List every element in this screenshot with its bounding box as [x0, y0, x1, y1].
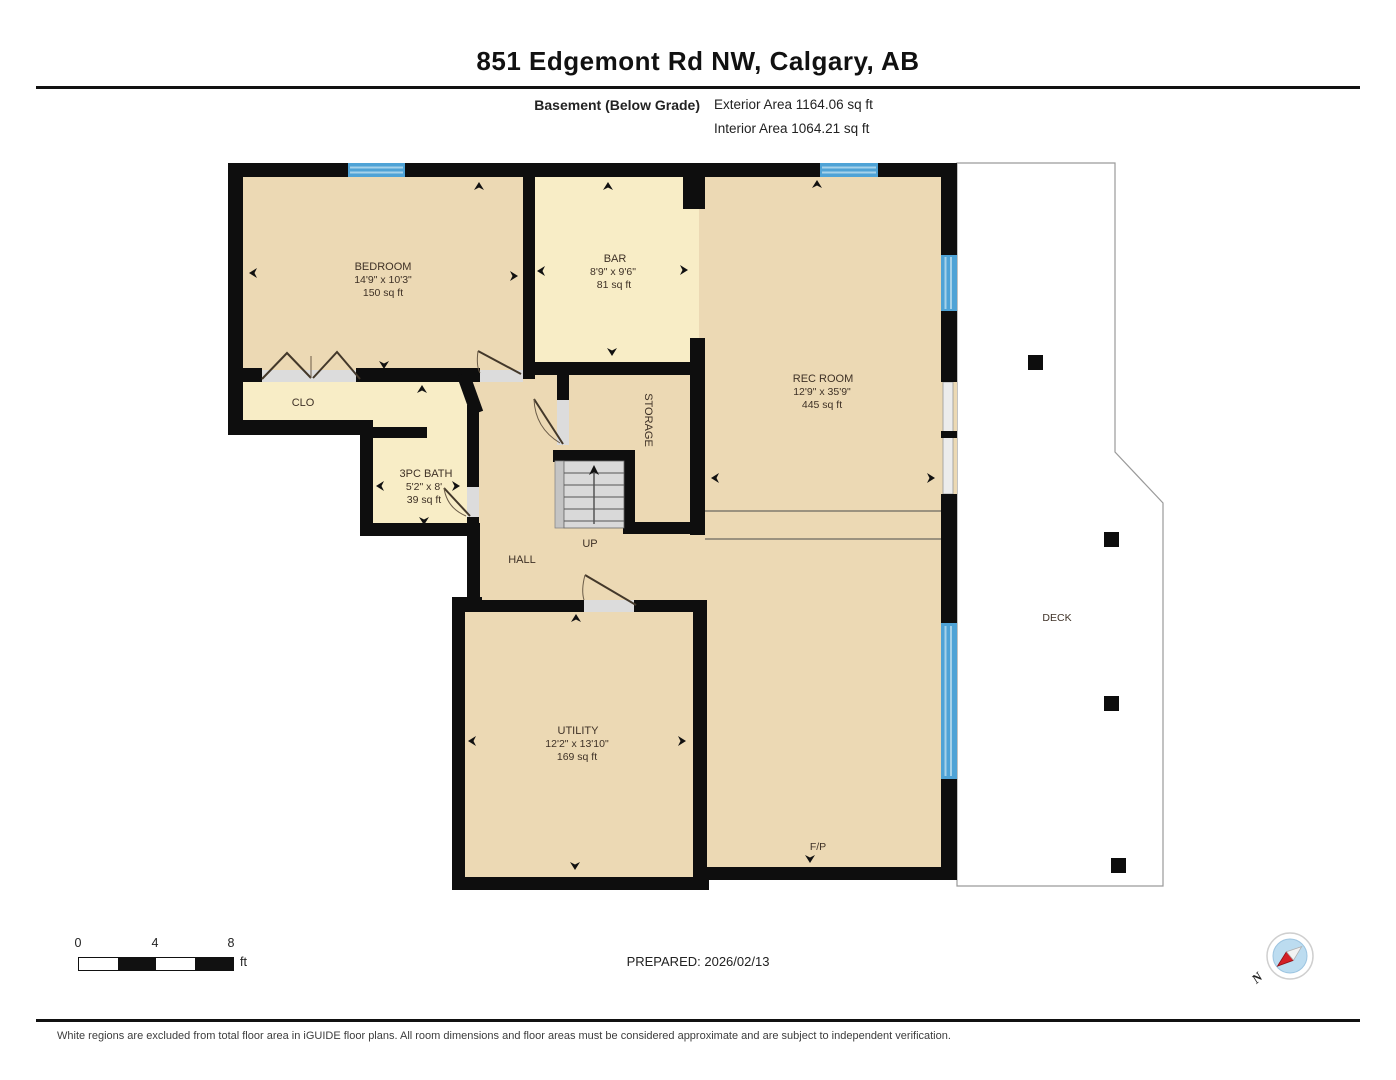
- bath-dims: 5'2" x 8': [406, 481, 442, 493]
- hall-label: HALL: [508, 554, 536, 566]
- exterior-area: Exterior Area 1164.06 sq ft: [714, 97, 873, 112]
- scale-tick-0: 0: [65, 936, 91, 950]
- stair-rail: [555, 461, 564, 528]
- wall-segment: [690, 338, 705, 535]
- footer-divider: [36, 1019, 1360, 1022]
- bar-label: BAR: [604, 253, 627, 265]
- interior-area: Interior Area 1064.21 sq ft: [714, 121, 869, 136]
- wall-segment: [553, 450, 635, 462]
- utility-dims: 12'2" x 13'10": [545, 738, 609, 750]
- wall-segment: [683, 163, 705, 209]
- bath-label: 3PC BATH: [400, 468, 453, 480]
- wall-segment: [634, 600, 707, 612]
- patio-door-jamb: [941, 431, 957, 438]
- rec-room-area: 445 sq ft: [802, 399, 842, 411]
- utility-label: UTILITY: [558, 725, 600, 737]
- bedroom-dims: 14'9" x 10'3": [354, 274, 412, 286]
- wall-segment: [693, 600, 707, 880]
- bedroom-label: BEDROOM: [355, 261, 412, 273]
- wall-segment: [941, 163, 957, 255]
- wall-segment: [467, 523, 480, 608]
- utility-door-opening: [584, 600, 634, 612]
- bath-door-opening: [467, 487, 479, 517]
- wall-segment: [557, 373, 569, 400]
- wall-segment: [228, 420, 365, 435]
- wall-segment: [623, 450, 635, 534]
- fireplace-label: F/P: [810, 841, 826, 853]
- compass-north-label: N: [1248, 969, 1266, 988]
- wall-segment: [360, 420, 373, 536]
- wall-segment: [467, 517, 479, 529]
- rec-room-dims: 12'9" x 35'9": [793, 386, 851, 398]
- floorplan-canvas: BEDROOM 14'9" x 10'3" 150 sq ft BAR 8'9"…: [0, 0, 1396, 1080]
- deck-post: [1111, 858, 1126, 873]
- window: [348, 163, 405, 177]
- deck-post: [1104, 696, 1119, 711]
- wall-segment: [360, 523, 480, 536]
- wall-segment: [373, 427, 427, 438]
- floor-label: Basement (Below Grade): [380, 97, 700, 113]
- wall-segment: [452, 600, 584, 612]
- wall-segment: [700, 867, 957, 880]
- deck-outline: [957, 163, 1163, 886]
- bar-dims: 8'9" x 9'6": [590, 266, 636, 278]
- wall-segment: [941, 494, 957, 623]
- wall-segment: [941, 779, 957, 880]
- deck-post: [1028, 355, 1043, 370]
- bar-area: 81 sq ft: [597, 279, 632, 291]
- staircase: [555, 461, 624, 528]
- wall-segment: [523, 163, 535, 379]
- page-title: 851 Edgemont Rd NW, Calgary, AB: [0, 46, 1396, 77]
- wall-segment: [467, 405, 479, 487]
- window: [941, 255, 957, 311]
- header-divider: [36, 86, 1360, 89]
- window: [941, 623, 957, 779]
- closet-label: CLO: [292, 397, 315, 409]
- rec-room-label: REC ROOM: [793, 373, 854, 385]
- wall-segment: [452, 877, 709, 890]
- footer-disclaimer: White regions are excluded from total fl…: [57, 1030, 951, 1042]
- wall-segment: [941, 311, 957, 382]
- scale-tick-8: 8: [218, 936, 244, 950]
- up-label: UP: [582, 538, 597, 550]
- scale-tick-4: 4: [142, 936, 168, 950]
- wall-segment: [523, 362, 705, 375]
- deck-post: [1104, 532, 1119, 547]
- wall-segment: [228, 368, 262, 382]
- wall-segment: [452, 597, 465, 890]
- floorplan-page: BEDROOM 14'9" x 10'3" 150 sq ft BAR 8'9"…: [0, 0, 1396, 1080]
- bath-area: 39 sq ft: [407, 494, 442, 506]
- wall-segment: [228, 163, 243, 435]
- window: [820, 163, 878, 177]
- deck-area: [957, 163, 1163, 886]
- deck-label: DECK: [1042, 612, 1071, 624]
- prepared-date: PREPARED: 2026/02/13: [0, 954, 1396, 969]
- storage-label: STORAGE: [642, 393, 654, 447]
- utility-area: 169 sq ft: [557, 751, 597, 763]
- bedroom-area: 150 sq ft: [363, 287, 403, 299]
